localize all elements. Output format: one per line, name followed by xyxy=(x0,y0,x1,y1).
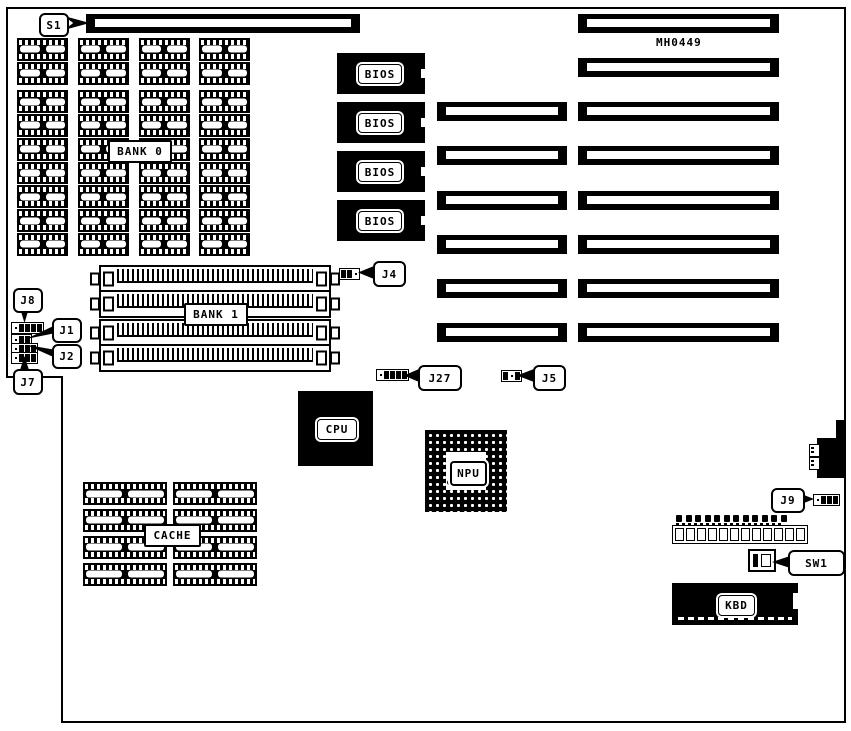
expansion-slot xyxy=(578,58,779,77)
bank0-dram-chip xyxy=(17,38,68,61)
bank0-dram-chip xyxy=(78,209,129,232)
cache-sram-chip xyxy=(173,563,257,586)
bank0-dram-chip xyxy=(139,185,190,208)
expansion-slot xyxy=(578,191,779,210)
bios-label: BIOS xyxy=(358,211,402,231)
s1-label: S1 xyxy=(39,13,69,37)
j4-pointer xyxy=(358,266,374,279)
j27-label: J27 xyxy=(418,365,462,391)
bank0-dram-chip xyxy=(199,233,250,256)
bank0-dram-chip xyxy=(199,209,250,232)
bank0-dram-chip xyxy=(199,38,250,61)
j9-jumper xyxy=(813,494,840,506)
cache-label: CACHE xyxy=(144,524,201,547)
bank0-dram-chip xyxy=(17,233,68,256)
board-edge-bottom xyxy=(61,721,846,723)
s1-slot xyxy=(86,14,360,33)
bank0-dram-chip xyxy=(78,162,129,185)
board-edge-top xyxy=(6,7,846,9)
bank0-dram-chip xyxy=(139,90,190,113)
bank0-dram-chip xyxy=(17,114,68,137)
j5-label: J5 xyxy=(533,365,566,391)
bank1-simm-socket xyxy=(99,265,331,293)
expansion-slot xyxy=(437,102,567,121)
bios-label: BIOS xyxy=(358,64,402,84)
board-edge-left-upper xyxy=(6,7,8,378)
cpu-label: CPU xyxy=(317,419,357,440)
bank1-simm-socket xyxy=(99,344,331,372)
bios-chip-notch xyxy=(421,118,425,127)
bank0-dram-chip xyxy=(199,185,250,208)
bank0-dram-chip xyxy=(78,90,129,113)
bank0-dram-chip xyxy=(78,62,129,85)
j8-pin-header xyxy=(11,322,44,334)
cache-sram-chip xyxy=(83,482,167,505)
bank0-dram-chip xyxy=(78,38,129,61)
bank0-dram-chip xyxy=(139,162,190,185)
kbd-chip-pinline xyxy=(678,617,792,620)
bank0-dram-chip xyxy=(17,90,68,113)
bios-chip-notch xyxy=(421,69,425,78)
bank0-dram-chip xyxy=(17,162,68,185)
expansion-slot xyxy=(437,191,567,210)
bank0-dram-chip xyxy=(139,62,190,85)
bank0-dram-chip xyxy=(139,233,190,256)
expansion-slot xyxy=(578,146,779,165)
bios-label: BIOS xyxy=(358,162,402,182)
bios-chip-notch xyxy=(421,216,425,225)
bank0-dram-chip xyxy=(78,185,129,208)
j7-label: J7 xyxy=(13,369,43,395)
kbd-chip-notch xyxy=(793,593,799,609)
sw1-switch xyxy=(748,549,776,572)
bank0-dram-chip xyxy=(78,114,129,137)
expansion-slot xyxy=(578,323,779,342)
bank0-dram-chip xyxy=(199,138,250,161)
power-header-sockets xyxy=(672,525,808,544)
kbd-label: KBD xyxy=(718,595,755,616)
expansion-slot xyxy=(578,102,779,121)
j4-label: J4 xyxy=(373,261,406,287)
expansion-slot xyxy=(437,279,567,298)
bank0-label: BANK 0 xyxy=(108,140,172,163)
j9-label: J9 xyxy=(771,488,805,513)
sw1-label: SW1 xyxy=(788,550,845,576)
j2-label: J2 xyxy=(52,344,82,369)
bank0-dram-chip xyxy=(139,209,190,232)
keyboard-port-body xyxy=(817,438,839,478)
bank0-dram-chip xyxy=(17,62,68,85)
keyboard-port-plug-upper xyxy=(809,444,820,457)
bank0-dram-chip xyxy=(199,90,250,113)
bank0-dram-chip xyxy=(17,138,68,161)
j4-jumper xyxy=(339,268,360,280)
model-code: MH0449 xyxy=(656,36,702,49)
bank0-dram-chip xyxy=(78,233,129,256)
j27-jumper xyxy=(376,369,409,381)
board-edge-left-lower xyxy=(61,376,63,723)
expansion-slot xyxy=(578,14,779,33)
board-edge-right xyxy=(844,7,846,723)
j8-label: J8 xyxy=(13,288,43,313)
motherboard-diagram: MH0449 S1 CPU NPU KBD SW1 BANK 0 BANK 1 … xyxy=(0,0,851,731)
expansion-slot xyxy=(578,279,779,298)
bank0-dram-chip xyxy=(199,114,250,137)
bank0-dram-chip xyxy=(139,114,190,137)
bank0-dram-chip xyxy=(199,162,250,185)
bios-chip-notch xyxy=(421,167,425,176)
keyboard-port-plug-lower xyxy=(809,457,820,470)
expansion-slot xyxy=(437,235,567,254)
bios-label: BIOS xyxy=(358,113,402,133)
bank1-label: BANK 1 xyxy=(184,303,248,326)
bank0-dram-chip xyxy=(17,209,68,232)
npu-label: NPU xyxy=(450,461,487,486)
bank0-dram-chip xyxy=(17,185,68,208)
expansion-slot xyxy=(578,235,779,254)
j1-label: J1 xyxy=(52,318,82,343)
power-header-pins xyxy=(676,515,787,522)
cache-sram-chip xyxy=(173,482,257,505)
expansion-slot xyxy=(437,146,567,165)
bank0-dram-chip xyxy=(199,62,250,85)
expansion-slot xyxy=(437,323,567,342)
bank0-dram-chip xyxy=(139,38,190,61)
cache-sram-chip xyxy=(83,563,167,586)
